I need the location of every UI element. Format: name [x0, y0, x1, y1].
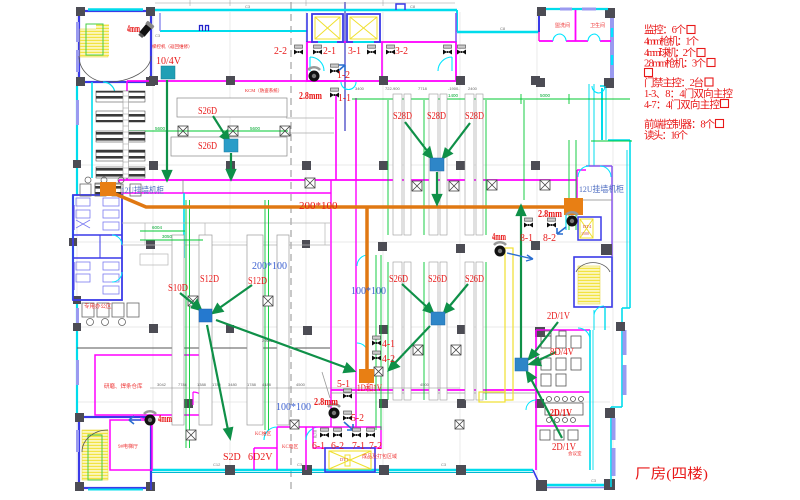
svg-text:-1900-: -1900-	[448, 86, 460, 91]
svg-text:4mm: 4mm	[492, 232, 506, 243]
svg-text:C12: C12	[213, 462, 221, 467]
svg-text:S26D: S26D	[198, 106, 217, 117]
svg-text:3-1: 3-1	[348, 45, 361, 57]
svg-text:2.8mm: 2.8mm	[538, 209, 563, 220]
svg-text:8-2: 8-2	[543, 232, 556, 244]
svg-text:S28D: S28D	[393, 111, 412, 122]
svg-text:6004: 6004	[152, 225, 163, 230]
svg-text:1788: 1788	[247, 382, 257, 387]
svg-text:3050: 3050	[162, 234, 173, 239]
svg-text:KC维区: KC维区	[255, 430, 271, 437]
svg-text:DT4: DT4	[583, 224, 592, 229]
svg-text:2.8mm: 2.8mm	[299, 91, 323, 102]
svg-text:5600: 5600	[155, 126, 166, 131]
svg-text:S26D: S26D	[198, 141, 217, 152]
svg-text:C3: C3	[155, 33, 161, 38]
svg-text:KCM（防盗系统）: KCM（防盗系统）	[245, 87, 282, 94]
svg-text:盥洗间: 盥洗间	[555, 22, 570, 29]
svg-text:1400: 1400	[448, 93, 459, 98]
svg-text:厂房(四楼): 厂房(四楼)	[635, 467, 708, 483]
svg-text:S12D: S12D	[248, 276, 267, 287]
svg-text:4488: 4488	[262, 382, 272, 387]
svg-text:200*100: 200*100	[299, 200, 338, 212]
svg-text:2D/1V: 2D/1V	[552, 442, 577, 453]
svg-text:1-3、8：4门双向主控: 1-3、8：4门双向主控	[644, 87, 734, 100]
svg-text:读头：16个: 读头：16个	[644, 129, 689, 142]
svg-text:5600: 5600	[250, 126, 261, 131]
svg-text:C3: C3	[245, 4, 251, 9]
svg-text:C3: C3	[591, 478, 597, 483]
svg-text:9#电梯厅: 9#电梯厅	[118, 443, 138, 450]
svg-text:S12D: S12D	[200, 274, 219, 285]
svg-text:3-2: 3-2	[395, 45, 408, 57]
svg-text:C8: C8	[500, 26, 506, 31]
svg-text:12U挂墙机柜: 12U挂墙机柜	[121, 185, 164, 195]
svg-text:4mm: 4mm	[158, 414, 172, 425]
svg-text:4mm球机：2个: 4mm球机：2个	[644, 46, 697, 59]
svg-text:1500: 1500	[581, 231, 589, 236]
svg-text:前端控制器：8个: 前端控制器：8个	[644, 118, 716, 131]
svg-text:2-1: 2-1	[323, 45, 336, 57]
svg-text:S26D: S26D	[465, 274, 484, 285]
svg-text:C8: C8	[410, 4, 416, 9]
svg-text:C3: C3	[297, 462, 303, 467]
svg-text:5000: 5000	[540, 93, 551, 98]
svg-text:100*100: 100*100	[276, 402, 311, 413]
svg-text:4-1: 4-1	[382, 338, 395, 350]
svg-text:KC电区: KC电区	[282, 443, 298, 450]
svg-text:S2D: S2D	[223, 452, 241, 463]
svg-text:3042: 3042	[157, 382, 167, 387]
svg-text:2400: 2400	[468, 86, 478, 91]
svg-text:监控：6个: 监控：6个	[644, 23, 687, 36]
svg-text:1-1: 1-1	[338, 92, 351, 104]
svg-text:S26D: S26D	[428, 274, 447, 285]
svg-text:S28D: S28D	[427, 111, 446, 122]
svg-text:5-1: 5-1	[337, 378, 350, 390]
svg-text:200*100: 200*100	[252, 261, 287, 272]
svg-text:100*100: 100*100	[351, 286, 386, 297]
svg-text:12U挂墙机柜: 12U挂墙机柜	[579, 184, 624, 194]
svg-text:2D/1V: 2D/1V	[550, 408, 573, 419]
svg-text:专用办公区: 专用办公区	[84, 302, 112, 310]
svg-text:8-1: 8-1	[520, 232, 533, 244]
svg-text:1D和1V: 1D和1V	[357, 383, 382, 393]
svg-text:1-2: 1-2	[337, 69, 350, 81]
svg-text:2D/1V: 2D/1V	[547, 311, 571, 322]
svg-text:DT1: DT1	[340, 457, 348, 462]
svg-text:4-7：4门双向主控: 4-7：4门双向主控	[644, 98, 721, 111]
svg-text:2-2: 2-2	[274, 45, 287, 57]
svg-text:722-900: 722-900	[385, 86, 400, 91]
svg-text:4500: 4500	[420, 382, 430, 387]
svg-text:3400: 3400	[355, 86, 365, 91]
svg-text:6-2: 6-2	[331, 440, 344, 452]
svg-text:10/4V: 10/4V	[156, 55, 181, 67]
svg-text:3480: 3480	[228, 382, 238, 387]
svg-text:7-1: 7-1	[352, 440, 365, 452]
svg-text:4500: 4500	[296, 382, 306, 387]
svg-text:7788: 7788	[178, 382, 188, 387]
svg-text:S28D: S28D	[465, 111, 484, 122]
svg-text:7718: 7718	[418, 86, 428, 91]
svg-text:8178: 8178	[313, 430, 318, 438]
svg-text:C3: C3	[441, 462, 447, 467]
svg-text:7-2: 7-2	[369, 440, 382, 452]
svg-text:6D2V: 6D2V	[248, 452, 273, 463]
svg-text:4mm: 4mm	[127, 24, 140, 35]
svg-text:成品及打包区域: 成品及打包区域	[362, 453, 397, 460]
svg-text:5-2: 5-2	[351, 412, 364, 424]
svg-text:S10D: S10D	[168, 283, 188, 294]
svg-text:S26D: S26D	[389, 274, 408, 285]
svg-text:梯控机（返回维修）: 梯控机（返回维修）	[152, 43, 193, 50]
svg-text:8D/4V: 8D/4V	[550, 347, 575, 358]
svg-text:4mm枪机：1个: 4mm枪机：1个	[644, 35, 700, 48]
svg-text:研磨、焊条仓库: 研磨、焊条仓库	[104, 382, 143, 390]
svg-text:2.8mm枪机：3个: 2.8mm枪机：3个	[644, 57, 707, 70]
svg-text:1388: 1388	[197, 382, 207, 387]
svg-text:2.8mm: 2.8mm	[314, 397, 339, 408]
svg-text:门禁主控：2台: 门禁主控：2台	[644, 76, 704, 89]
svg-text:卫生间: 卫生间	[590, 22, 605, 29]
svg-text:4-2: 4-2	[382, 353, 395, 365]
svg-text:6-1: 6-1	[312, 440, 325, 452]
